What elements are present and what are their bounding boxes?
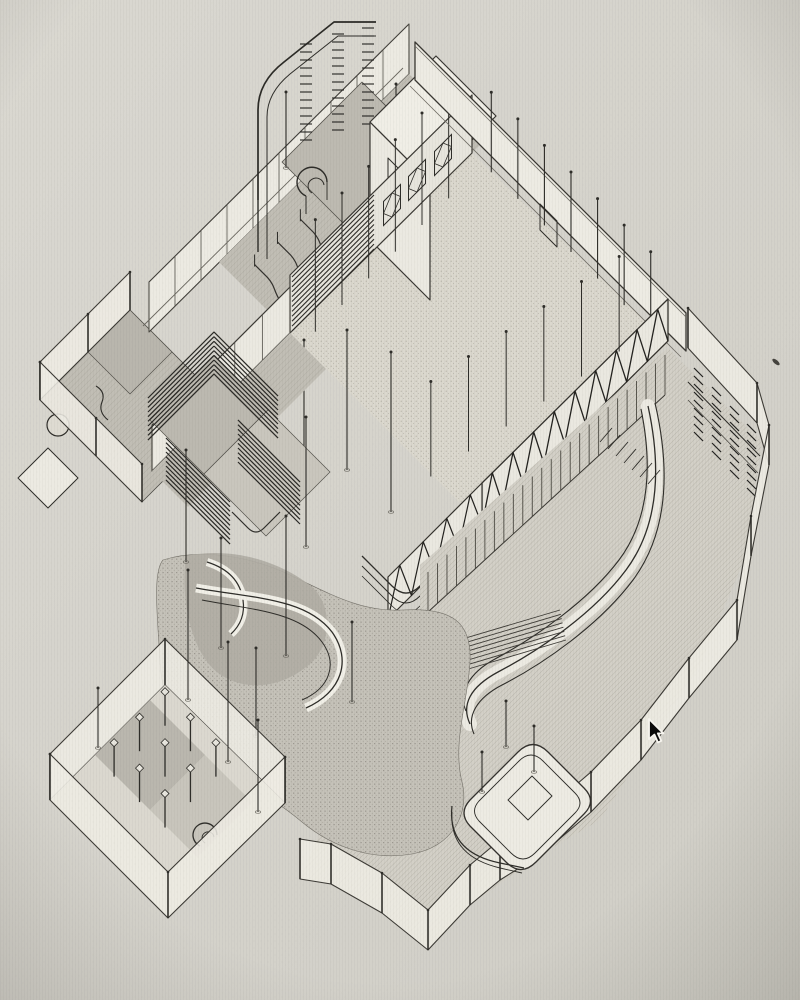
screenshot-canvas (0, 0, 800, 1000)
photo-vignette (0, 0, 800, 1000)
axonometric-drawing (0, 0, 800, 1000)
